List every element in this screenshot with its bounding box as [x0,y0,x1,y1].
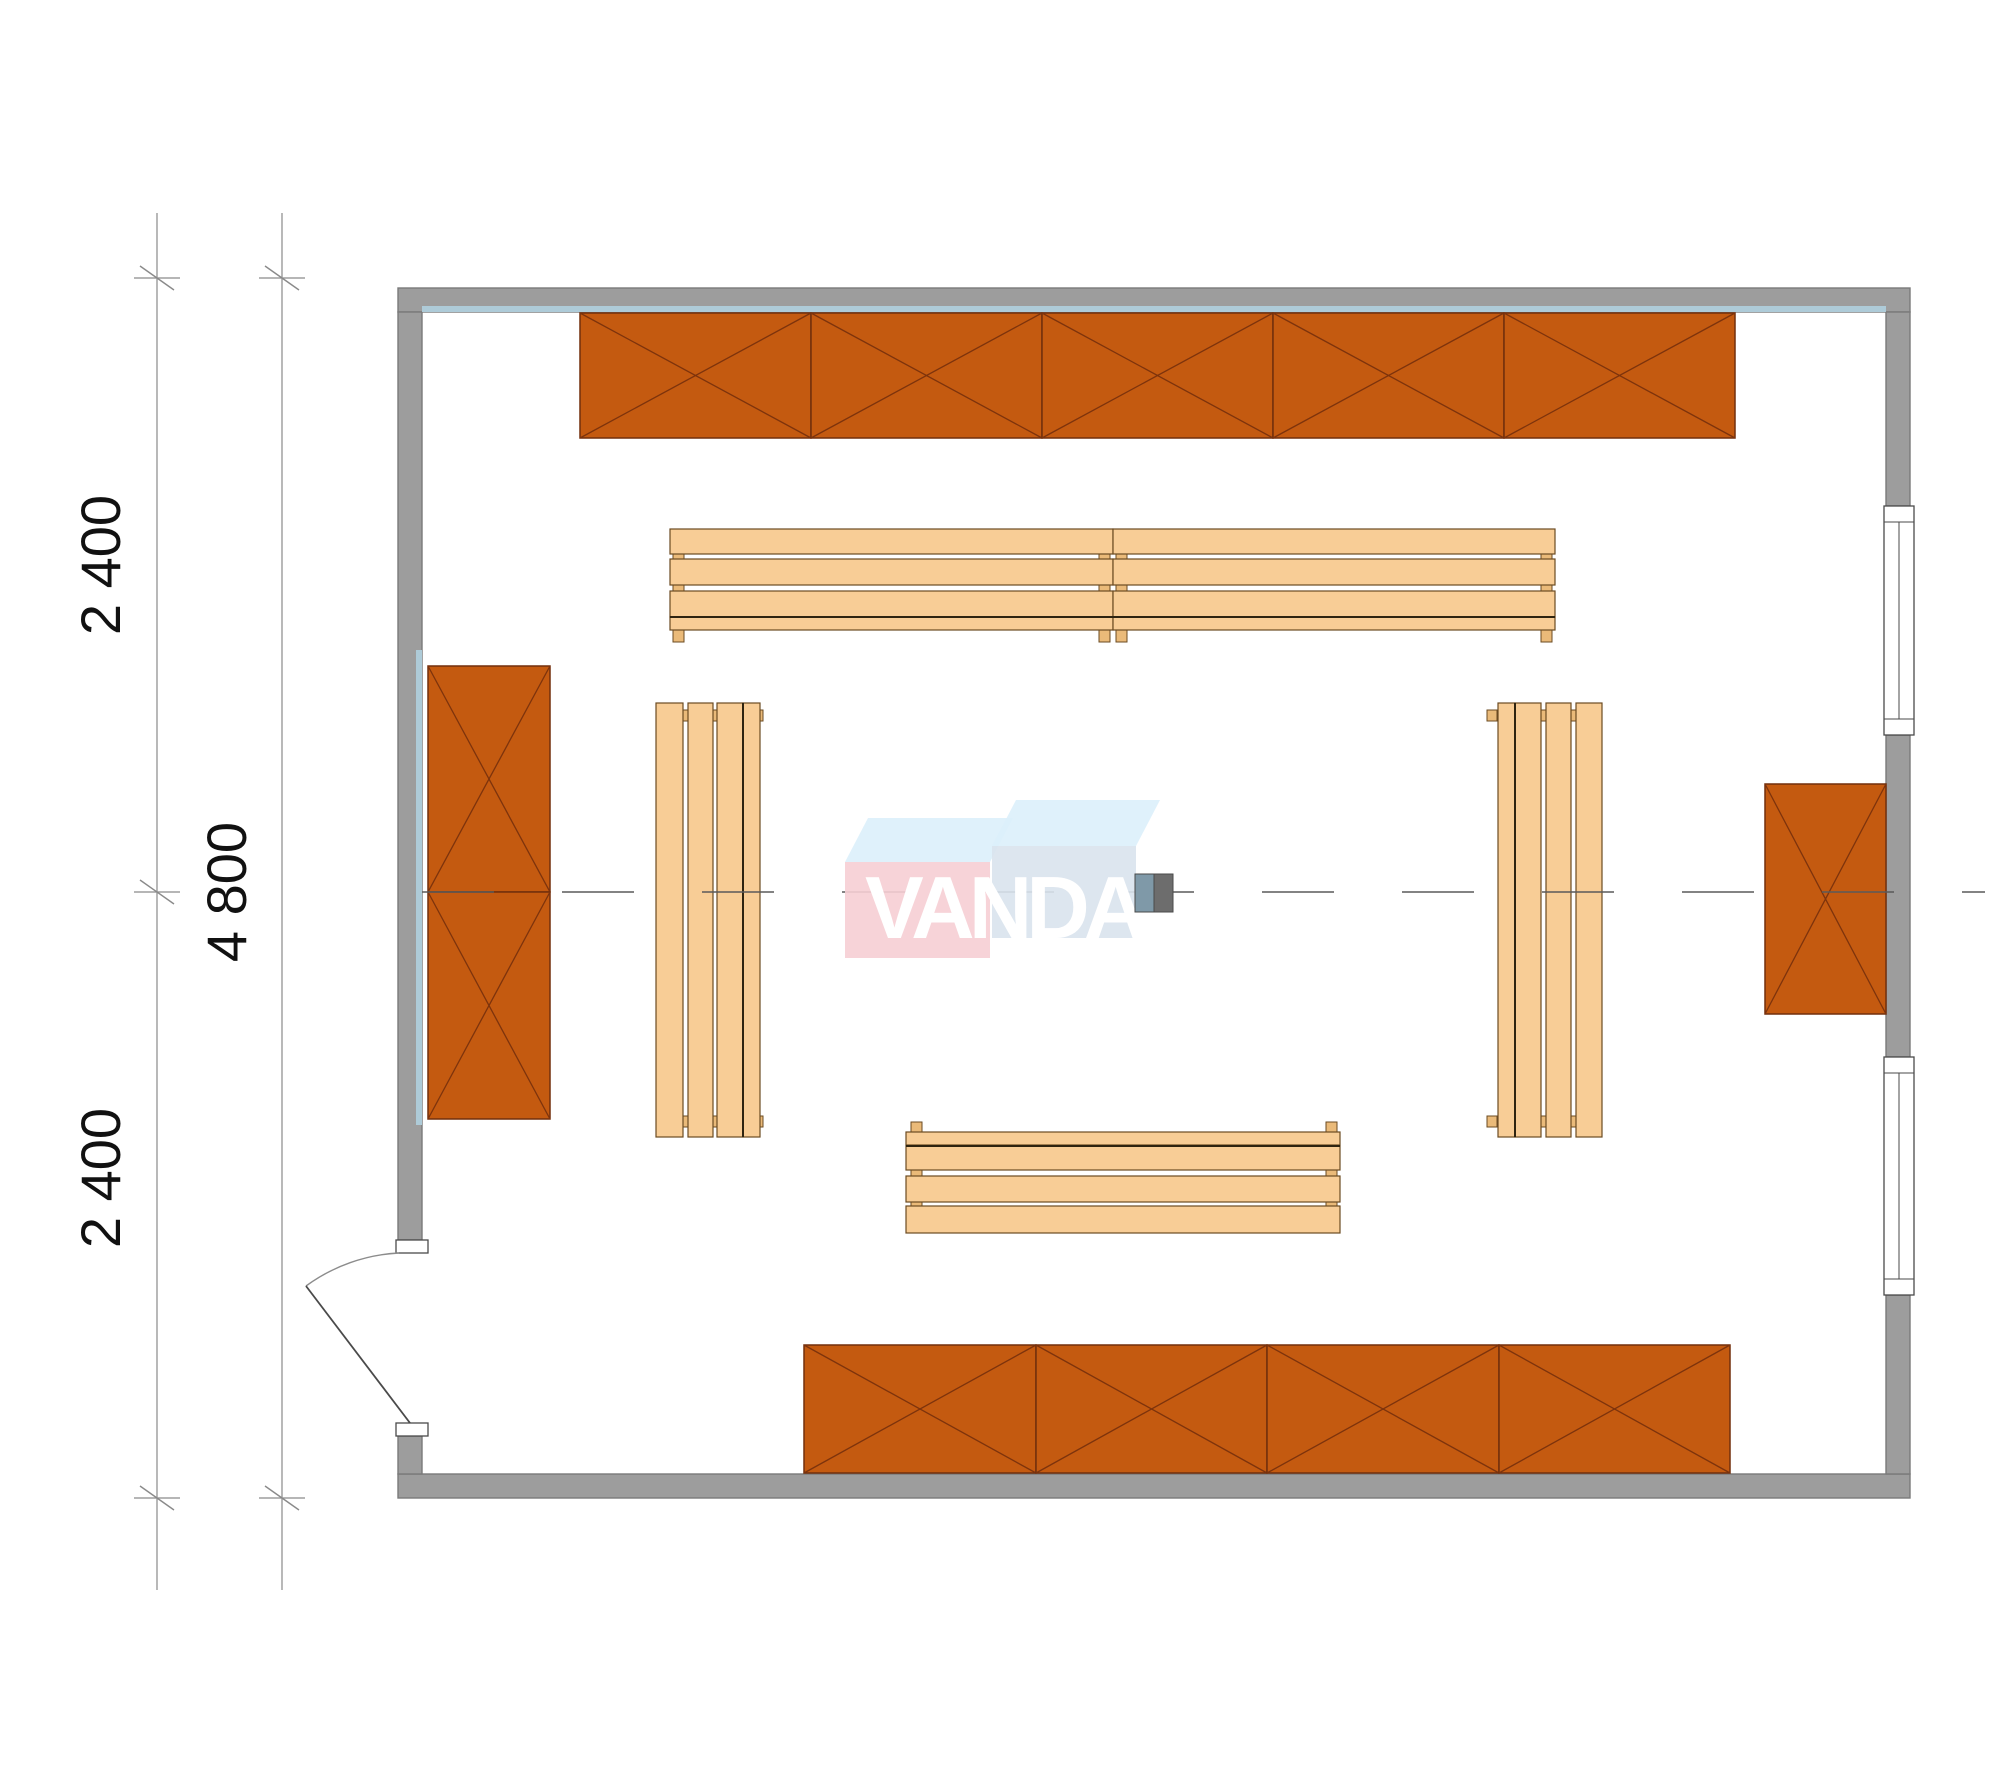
bench-slat [906,1132,1340,1145]
column-left-half [1135,874,1154,912]
watermark-box-blue-top [992,800,1160,846]
bench-slat [1113,529,1555,554]
bench-foot [1487,1116,1497,1127]
door-jamb-2 [396,1423,428,1436]
watermark-text: VANDA [865,858,1146,957]
door-jamb-1 [396,1240,428,1253]
wall-bottom [398,1474,1910,1498]
bench-slat [1515,703,1541,1137]
column-right-half [1154,874,1173,912]
bench-slat [906,1146,1340,1170]
bench-slat [1576,703,1602,1137]
bench-foot [1116,630,1127,642]
dimension-label-2: 4 800 [195,822,258,962]
bench-slat [670,617,1113,630]
bench-slat [656,703,683,1137]
dimension-label-1: 2 400 [69,495,132,635]
wall-right-mid [1886,735,1910,1057]
wall-left-lower [398,1436,422,1474]
bench-slat [688,703,713,1137]
bench-slat [1113,617,1555,630]
wall-right-lower [1886,1295,1910,1474]
bench-slat [670,591,1113,617]
bench-slat [670,559,1113,585]
floor-plan-page: VANDA2 4004 8002 400 [0,0,2000,1786]
bench-foot [1099,630,1110,642]
floor-plan-svg: VANDA2 4004 8002 400 [0,0,2000,1786]
watermark-box-pink-top [845,818,1013,862]
dimension-label-3: 2 400 [69,1108,132,1248]
bench-slat [1498,703,1515,1137]
bench-slat [1546,703,1571,1137]
bench-foot [673,630,684,642]
bench-foot [1541,630,1552,642]
bench-foot [1487,710,1497,721]
bench-slat [1113,591,1555,617]
bench-slat [743,703,760,1137]
wall-inner-accent-1 [422,306,1886,312]
bench-slat [1113,559,1555,585]
bench-slat [717,703,743,1137]
bench-slat [906,1206,1340,1233]
wall-right-upper [1886,312,1910,506]
bench-slat [670,529,1113,554]
bench-slat [906,1176,1340,1202]
wall-inner-accent-2 [416,650,422,1125]
